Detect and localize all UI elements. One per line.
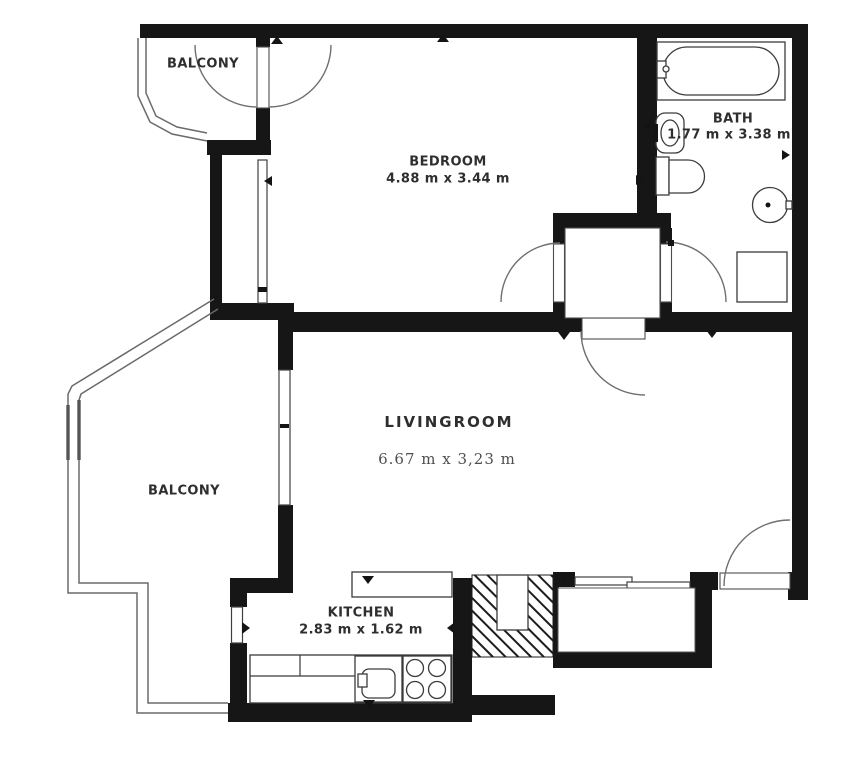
balcony-left-outline [68, 299, 228, 713]
bath-label: BATH [713, 112, 753, 127]
hallway [565, 228, 660, 318]
bedroom-door-jamb [554, 244, 565, 302]
livingroom-window-mullion [280, 424, 289, 428]
hall-door-arc [581, 331, 645, 395]
bath-door-arc [666, 242, 726, 302]
balcony-top-label: BALCONY [167, 57, 239, 72]
kitchen-sink [355, 656, 402, 702]
bedroom-dimensions: 4.88 m x 3.44 m [386, 172, 510, 187]
kitchen-label: KITCHEN [328, 606, 395, 621]
bath-dimensions: 1.77 m x 3.38 m [667, 128, 791, 143]
kitchen-counter-top [352, 572, 452, 597]
washing-machine [753, 188, 793, 223]
balcony-door-jamb [257, 47, 269, 108]
balcony-top-outline [138, 38, 207, 141]
bathtub [657, 42, 785, 100]
bedroom-label: BEDROOM [409, 155, 486, 170]
shower-square [737, 252, 787, 302]
bedroom-window-mullion [258, 287, 267, 292]
door-pivot-dot [668, 240, 674, 246]
bath-door-jamb [661, 244, 672, 302]
shaft-duct [497, 575, 528, 630]
stove [403, 656, 451, 702]
livingroom-door-leaf [720, 573, 790, 589]
kitchen-window [232, 607, 243, 643]
balcony-door-arc-right [269, 45, 331, 107]
livingroom-dimensions: 6.67 m x 3,23 m [378, 450, 516, 468]
balcony-left-label: BALCONY [148, 484, 220, 499]
livingroom-window [279, 370, 290, 505]
bedroom-door-arc [501, 243, 560, 302]
livingroom-label: LIVINGROOM [384, 413, 513, 431]
hall-door-leaf [582, 318, 645, 339]
balcony-door-arc-left [195, 45, 257, 107]
kitchen-dimensions: 2.83 m x 1.62 m [299, 623, 423, 638]
toilet [656, 157, 705, 195]
storage-room [558, 588, 695, 652]
floor-plan: BALCONY BEDROOM 4.88 m x 3.44 m BATH 1.7… [0, 0, 848, 762]
livingroom-sliding-window-left [575, 577, 632, 585]
